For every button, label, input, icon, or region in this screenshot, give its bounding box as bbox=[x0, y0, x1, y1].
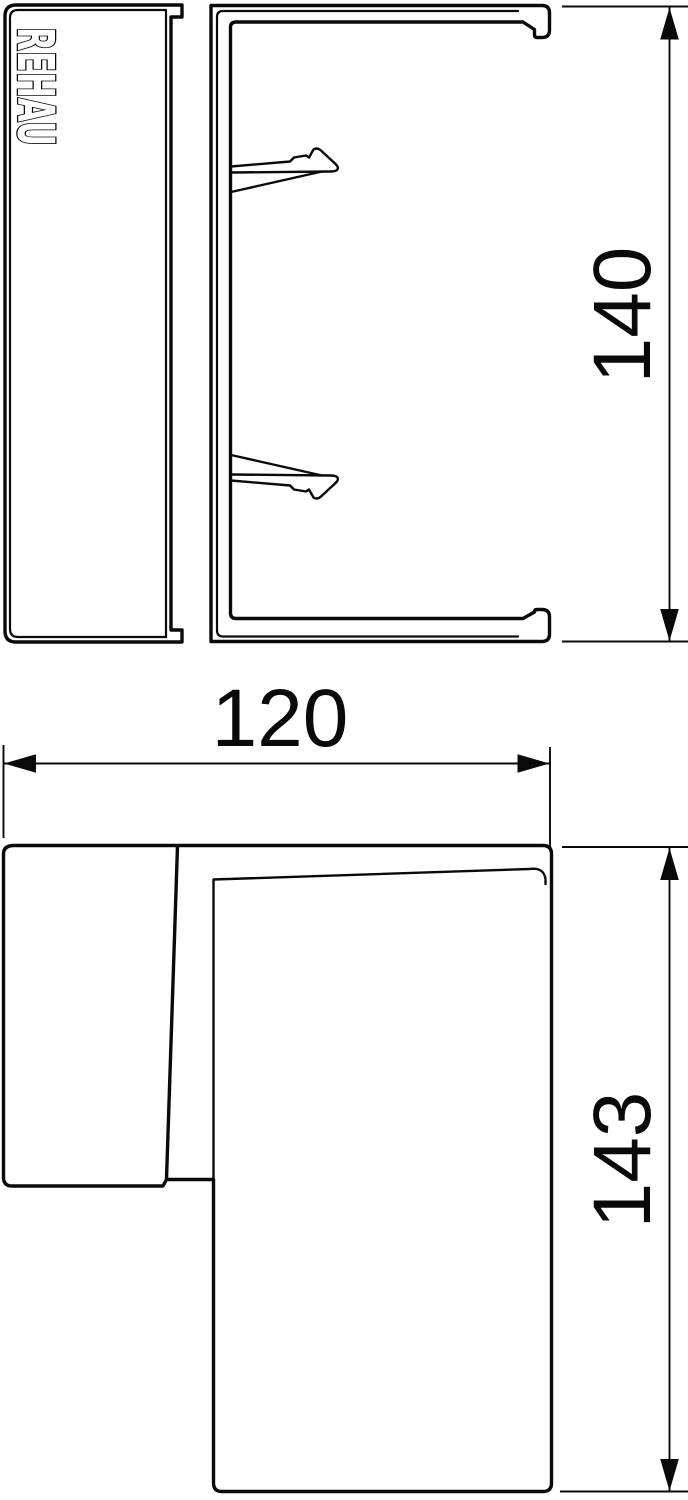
dim-140-arrow-up bbox=[660, 8, 679, 40]
dim-143-arrow-down bbox=[660, 1459, 679, 1491]
dim-143-arrow-up bbox=[660, 848, 679, 880]
dim-143-label: 143 bbox=[577, 1092, 668, 1229]
plan-outer-outline bbox=[4, 846, 552, 1492]
plan-inner-edges bbox=[214, 869, 546, 1180]
clip-latch-lower bbox=[231, 455, 338, 499]
cover-panel: REHAU bbox=[5, 5, 182, 642]
dim-120-arrow-right bbox=[518, 754, 550, 773]
side-section-view: REHAU 140 bbox=[5, 5, 688, 642]
dim-140-arrow-down bbox=[660, 609, 679, 641]
channel-mid-outline bbox=[217, 11, 518, 637]
dimension-140: 140 bbox=[562, 7, 688, 642]
clip-latch-upper bbox=[231, 148, 338, 192]
dim-140-label: 140 bbox=[577, 247, 668, 384]
dim-120-arrow-left bbox=[4, 754, 36, 773]
plan-wing-edge bbox=[167, 846, 178, 1179]
plan-view: 143 bbox=[4, 846, 688, 1492]
drawing-svg: REHAU 140 120 bbox=[0, 0, 688, 1500]
rehau-logo: REHAU bbox=[5, 27, 64, 146]
dim-120-label: 120 bbox=[212, 673, 349, 764]
channel-profile bbox=[211, 6, 550, 642]
channel-outer-outline bbox=[211, 6, 550, 642]
technical-drawing-canvas: REHAU 140 120 bbox=[0, 0, 688, 1500]
dimension-120: 120 bbox=[4, 673, 551, 849]
dimension-143: 143 bbox=[560, 847, 688, 1492]
